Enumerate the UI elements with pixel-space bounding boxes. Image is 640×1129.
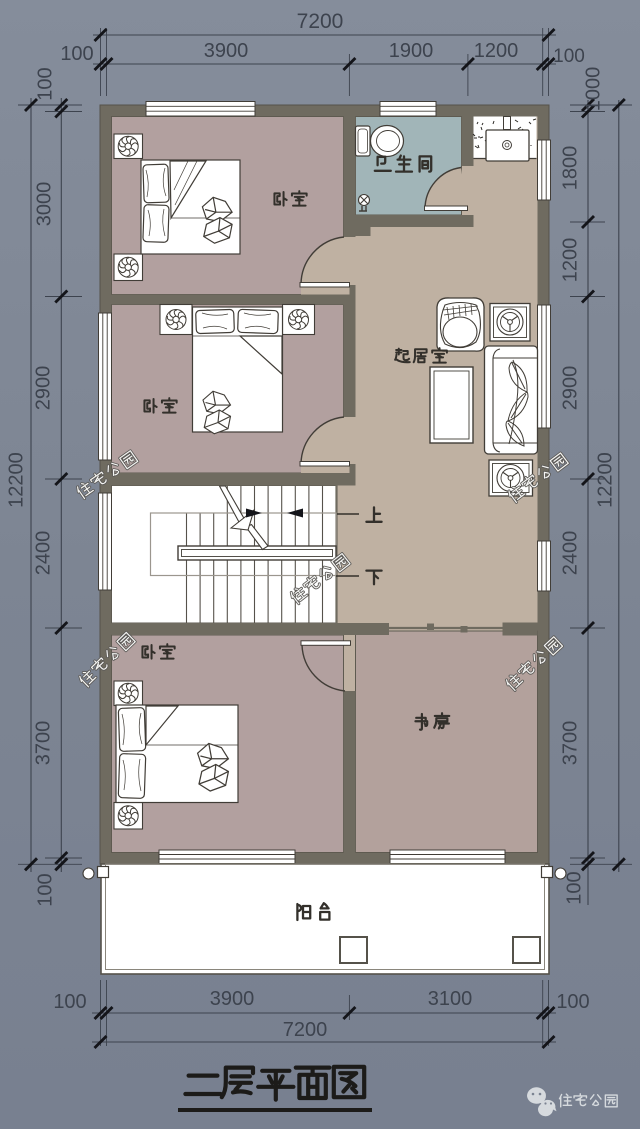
svg-text:100: 100 [34,67,56,100]
svg-text:100: 100 [53,991,86,1013]
svg-text:7200: 7200 [283,1019,328,1041]
svg-text:2900: 2900 [32,366,54,411]
svg-text:100: 100 [563,871,585,904]
svg-text:2400: 2400 [32,531,54,576]
svg-text:12200: 12200 [5,452,27,508]
svg-text:3100: 3100 [428,988,473,1010]
svg-text:3700: 3700 [559,721,581,766]
svg-text:1200: 1200 [474,40,519,62]
svg-text:2400: 2400 [559,531,581,576]
svg-text:100: 100 [553,46,585,67]
svg-text:12200: 12200 [594,452,616,508]
svg-text:1200: 1200 [559,238,581,283]
svg-text:3700: 3700 [32,721,54,766]
svg-text:3900: 3900 [210,988,255,1010]
svg-text:1000: 1000 [582,67,604,112]
svg-text:1800: 1800 [559,146,581,191]
svg-text:7200: 7200 [297,10,344,33]
svg-text:100: 100 [34,873,56,906]
svg-text:100: 100 [556,991,589,1013]
svg-text:1900: 1900 [389,40,434,62]
svg-text:2900: 2900 [559,366,581,411]
svg-text:3000: 3000 [33,182,55,227]
svg-text:100: 100 [60,43,93,65]
svg-text:3900: 3900 [204,40,249,62]
